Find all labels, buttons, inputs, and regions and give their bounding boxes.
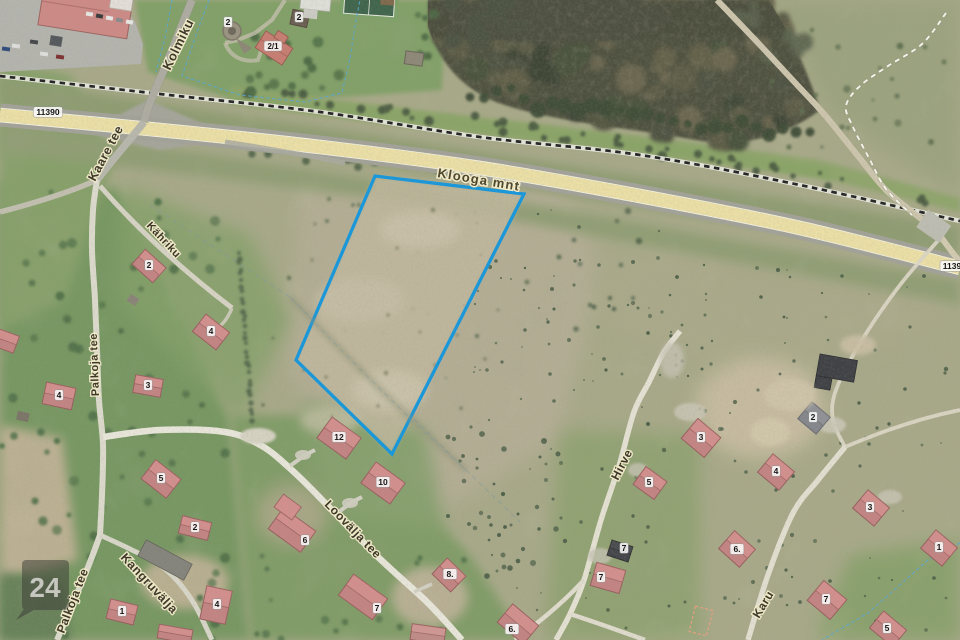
svg-text:24: 24 xyxy=(29,572,61,603)
